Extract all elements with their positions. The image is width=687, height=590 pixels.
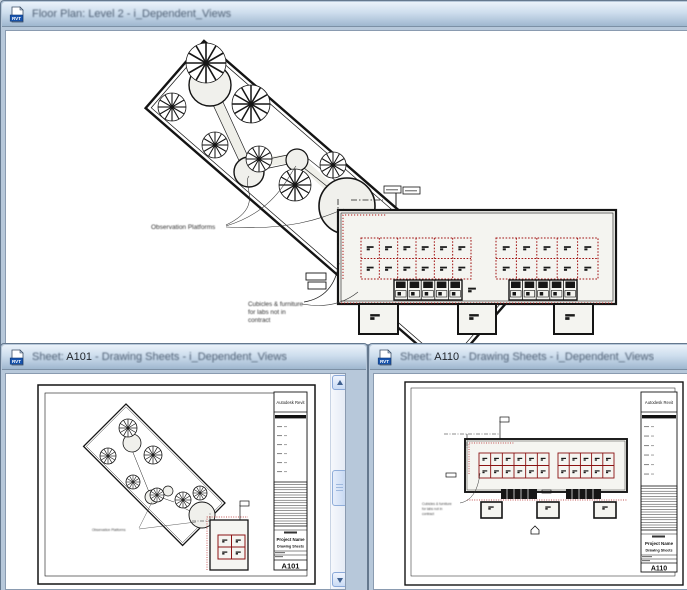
svg-text:RVT: RVT — [12, 16, 21, 21]
sheet-a110-title: Sheet: A110 - Drawing Sheets - i_Depende… — [400, 351, 654, 363]
platforms-label: Observation Platforms — [151, 224, 216, 231]
svg-text:Project Name: Project Name — [645, 541, 674, 546]
scroll-down-button[interactable] — [332, 572, 346, 587]
svg-text:for labs not in: for labs not in — [248, 309, 286, 316]
a110-sheet-number: A110 — [651, 566, 667, 573]
sheet-a110-window[interactable]: RVT Sheet: A110 - Drawing Sheets - i_Dep… — [368, 343, 687, 590]
rvt-file-icon: RVT — [9, 349, 26, 366]
sheet-a101-view[interactable]: Observation Platforms Autodesk Revit — [5, 373, 346, 590]
scroll-thumb[interactable] — [332, 470, 346, 506]
svg-text:Cubicles & furniture: Cubicles & furniture — [422, 502, 452, 506]
sheet-a110-view[interactable]: Cubicles & furniture for labs not in con… — [373, 373, 687, 590]
svg-text:Drawing Sheets: Drawing Sheets — [646, 549, 673, 553]
rvt-file-icon: RVT — [377, 349, 394, 366]
floor-plan-titlebar[interactable]: RVT Floor Plan: Level 2 - i_Dependent_Vi… — [2, 2, 687, 27]
floor-plan-drawing: Observation Platforms — [6, 31, 687, 345]
svg-text:contract: contract — [422, 512, 434, 516]
floor-plan-window[interactable]: RVT Floor Plan: Level 2 - i_Dependent_Vi… — [0, 0, 687, 346]
exterior-tables — [306, 273, 326, 289]
svg-text:Cubicles & furniture: Cubicles & furniture — [248, 301, 303, 308]
svg-text:for labs not in: for labs not in — [422, 507, 442, 511]
revit-workspace: RVT Floor Plan: Level 2 - i_Dependent_Vi… — [0, 0, 687, 590]
mini-platforms-label: Observation Platforms — [92, 528, 126, 532]
svg-text:Autodesk Revit: Autodesk Revit — [645, 400, 674, 405]
rvt-file-icon: RVT — [9, 6, 26, 23]
svg-text:Autodesk Revit: Autodesk Revit — [276, 400, 305, 405]
svg-text:RVT: RVT — [12, 359, 21, 364]
sheet-page — [38, 385, 315, 584]
sheet-a101-window[interactable]: RVT Sheet: A101 - Drawing Sheets - i_Dep… — [0, 343, 368, 590]
scroll-up-button[interactable] — [332, 375, 346, 390]
lab-rooms — [359, 304, 593, 334]
svg-text:Drawing Sheets: Drawing Sheets — [277, 545, 304, 549]
svg-text:RVT: RVT — [380, 359, 389, 364]
sheet-a110-titlebar[interactable]: RVT Sheet: A110 - Drawing Sheets - i_Dep… — [370, 345, 687, 370]
vertical-scrollbar[interactable] — [330, 374, 346, 589]
building-outline — [338, 210, 616, 304]
sheet-a101-titlebar[interactable]: RVT Sheet: A101 - Drawing Sheets - i_Dep… — [2, 345, 366, 370]
sheet-a101-title: Sheet: A101 - Drawing Sheets - i_Depende… — [32, 351, 287, 363]
a110-titleblock: Autodesk Revit Project Name Drawing Shee… — [641, 392, 677, 573]
mini-lab-rooms — [481, 502, 616, 518]
reference-tags[interactable] — [384, 186, 420, 194]
a101-titleblock: Autodesk Revit Project Name Drawing Shee… — [274, 392, 307, 571]
floor-plan-view[interactable]: Observation Platforms — [5, 30, 687, 345]
sheet-a101-drawing: Observation Platforms Autodesk Revit — [6, 374, 346, 590]
a101-sheet-number: A101 — [282, 562, 300, 571]
svg-text:contract: contract — [248, 317, 271, 324]
sheet-a110-drawing: Cubicles & furniture for labs not in con… — [374, 374, 687, 590]
floor-plan-title: Floor Plan: Level 2 - i_Dependent_Views — [32, 8, 231, 20]
svg-text:Project Name: Project Name — [276, 537, 305, 542]
